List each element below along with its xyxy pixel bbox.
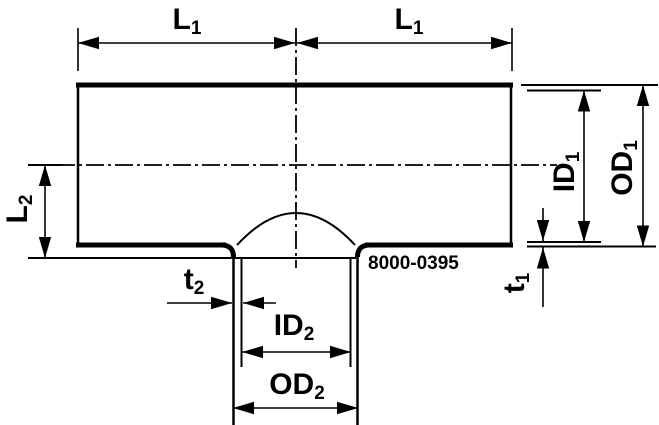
- dimension-id2: ID2: [242, 309, 351, 352]
- dimension-l1-left: L1: [78, 3, 295, 71]
- dimension-id1: ID1: [548, 91, 584, 243]
- l1-left-label: L1: [173, 3, 202, 39]
- t2-label: t2: [184, 263, 205, 299]
- od1-label: OD1: [606, 140, 642, 196]
- l2-label: L2: [1, 195, 37, 224]
- technical-drawing-page: L1 L1 L2 t2 ID2 OD2: [0, 0, 659, 425]
- branch-left-fillet: [222, 245, 234, 257]
- dimension-l2: L2: [1, 165, 63, 258]
- dimension-od1: OD1: [606, 85, 643, 247]
- l1-right-label: L1: [395, 3, 424, 39]
- t1-label: t1: [498, 272, 534, 293]
- id2-label: ID2: [274, 309, 315, 345]
- part-number: 8000-0395: [368, 253, 459, 274]
- id1-label: ID1: [548, 151, 584, 192]
- dimension-od2: OD2: [233, 368, 358, 408]
- dimension-t1: t1: [498, 208, 543, 307]
- dimension-l1-right: L1: [297, 3, 512, 71]
- od2-label: OD2: [269, 368, 325, 404]
- centerlines: [28, 28, 557, 268]
- dimension-t2: t2: [167, 263, 276, 303]
- tee-fitting-dimension-diagram: L1 L1 L2 t2 ID2 OD2: [0, 0, 659, 425]
